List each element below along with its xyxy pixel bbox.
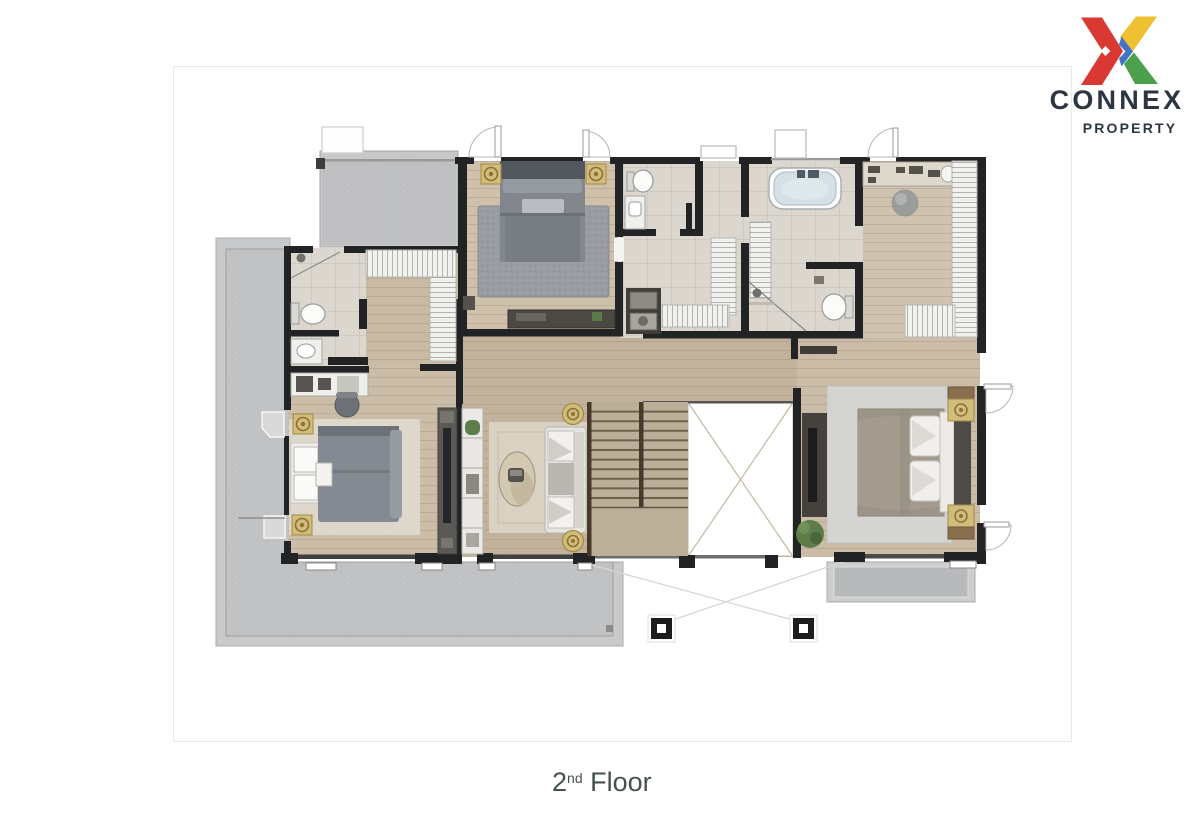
svg-text:2nd Floor: 2nd Floor (552, 767, 652, 797)
svg-text:PROPERTY: PROPERTY (1083, 120, 1178, 136)
svg-text:CONNEX: CONNEX (1050, 85, 1185, 115)
